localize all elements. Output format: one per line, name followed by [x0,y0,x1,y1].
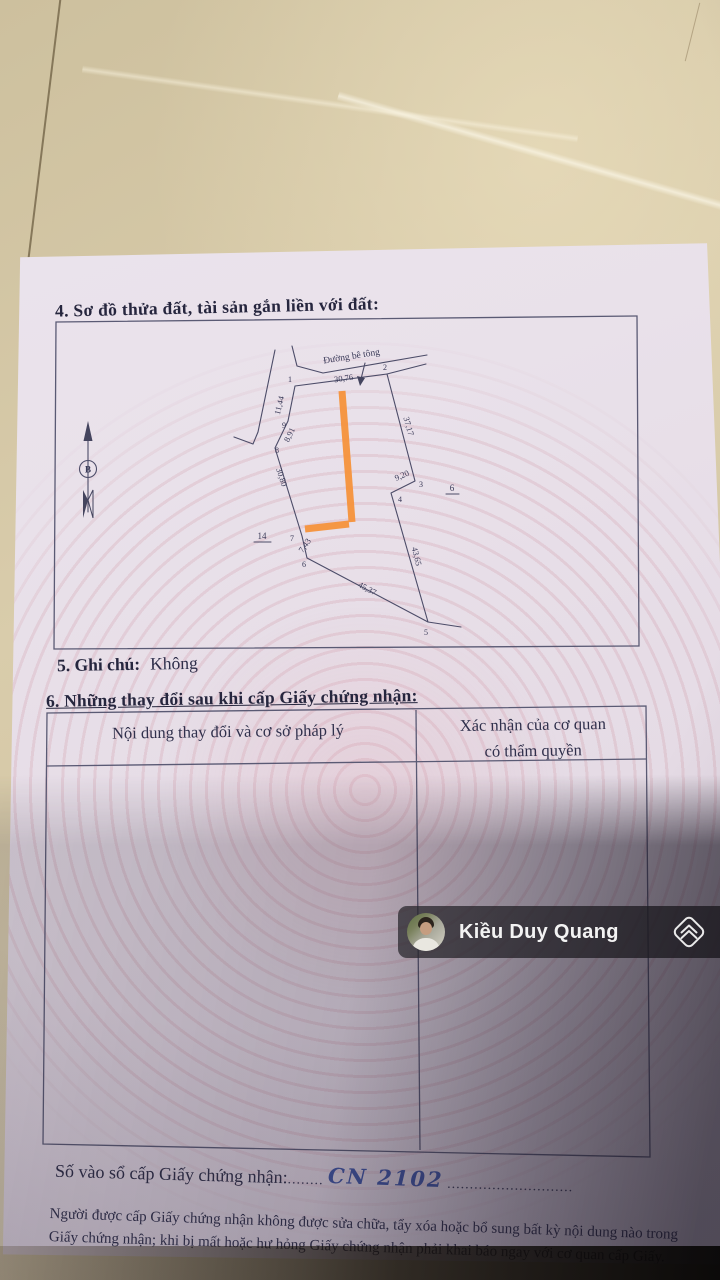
boundary-extension [387,364,426,374]
photo-of-land-certificate: 4. Sơ đồ thửa đất, tài sản gắn liền với … [0,0,720,1280]
serial-handwritten-value: CN 2102 [327,1163,444,1192]
vertex-label: 5 [424,628,428,637]
edge-length: 43,65 [410,546,424,567]
dotted-leader: ........ [287,1172,323,1188]
table-col2-header-line2: có thẩm quyền [428,736,638,764]
section5-note: 5. Ghi chú:Không [57,653,198,676]
neighbour-boundary [234,350,275,444]
edge-length: 9,20 [393,468,411,483]
vertex-label: 4 [398,495,402,504]
avatar-face [420,922,432,935]
tile-grout-line [25,0,62,282]
marble-vein [82,65,578,143]
vertex-label: 3 [419,480,423,489]
edge-length: 7,43 [296,536,313,554]
table-col2-header: Xác nhận của cơ quan có thẩm quyền [428,711,639,765]
vertex-label: 1 [288,375,292,384]
avatar [407,913,445,951]
watermark-name: Kiều Duy Quang [459,921,668,944]
table-col1-header: Nội dung thay đổi và cơ sở pháp lý [78,720,378,744]
north-arrow-icon: B [80,421,97,518]
road-label: Đường bê tông [323,348,381,367]
adjacent-plot-label: 6 [450,483,455,493]
dotted-leader: ............................ [447,1177,573,1196]
edge-length: 30,80 [274,466,289,487]
edge-length: 37,17 [401,416,416,437]
boundary-extension [428,622,461,627]
table-col2-header-line1: Xác nhận của cơ quan [428,711,638,739]
vertex-label: 7 [290,534,294,543]
tile-grout-line [685,3,700,61]
edge-length: 30,76 [333,372,353,385]
vertex-label: 6 [302,560,306,569]
brand-diamond-chevron-icon [668,911,710,953]
adjacent-plot-label: 14 [258,531,268,541]
section5-value: Không [150,653,198,674]
avatar-shirt [412,938,440,951]
watermark-bar: Kiều Duy Quang [398,906,720,958]
vertex-label: 2 [383,363,387,372]
edge-length: 45,37 [357,579,379,597]
plot-diagram: B Đường bê tông 30,76 37,17 9, [36,300,656,662]
vertex-label: 9 [282,421,286,430]
edge-length: 11,44 [272,394,286,415]
highlighted-strip [305,391,352,529]
svg-text:B: B [85,465,91,475]
section5-label: 5. Ghi chú: [57,654,140,675]
vertex-label: 8 [275,446,279,455]
